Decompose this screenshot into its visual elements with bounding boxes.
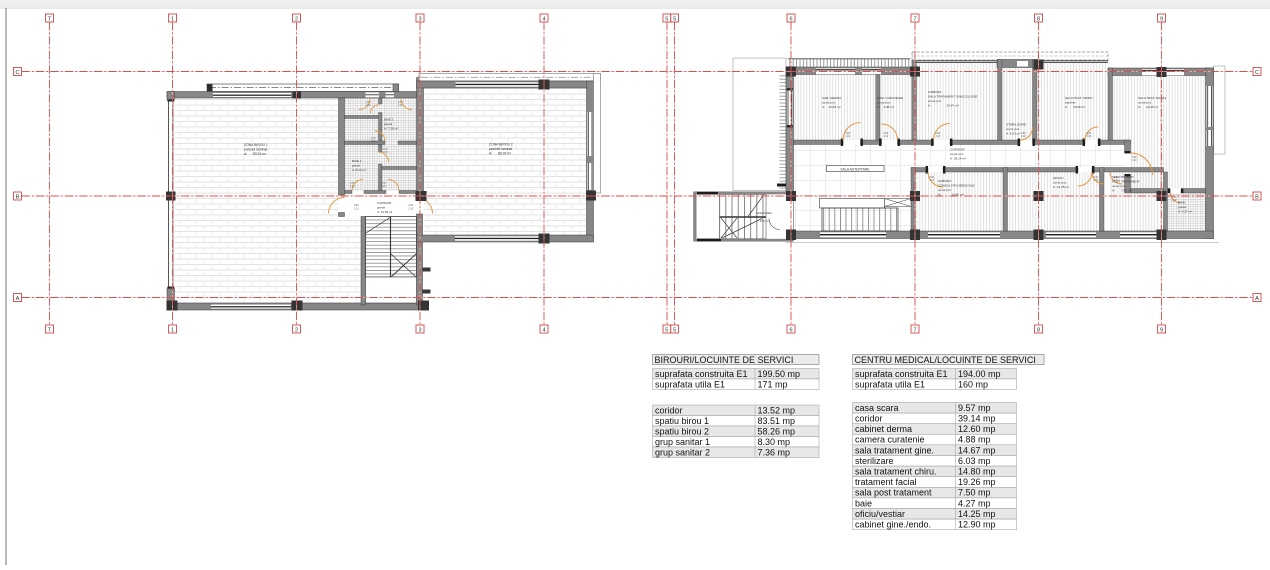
- svg-text:2.10: 2.10: [1021, 136, 1026, 138]
- svg-text:CAM. CURATENIE: CAM. CURATENIE: [877, 96, 903, 100]
- svg-text:7: 7: [913, 16, 916, 22]
- svg-text:83.51 mp: 83.51 mp: [758, 416, 796, 426]
- svg-text:A: 14.25 m²: A: 14.25 m²: [1053, 185, 1069, 189]
- svg-text:oficiu/vestiar: oficiu/vestiar: [855, 509, 905, 519]
- svg-text:covor pvc: covor pvc: [1138, 101, 1152, 105]
- svg-text:2.10: 2.10: [366, 105, 371, 107]
- svg-text:0.75: 0.75: [381, 183, 386, 185]
- svg-text:gresie: gresie: [384, 122, 393, 126]
- svg-text:2.10: 2.10: [398, 105, 403, 107]
- svg-text:2: 2: [295, 327, 298, 333]
- svg-text:39.14 mp: 39.14 mp: [958, 414, 996, 424]
- svg-text:7: 7: [913, 327, 916, 333]
- svg-text:BAIE 1: BAIE 1: [352, 159, 362, 163]
- svg-text:2: 2: [295, 16, 298, 22]
- svg-text:1: 1: [171, 16, 174, 22]
- svg-text:A: 7.36 m²: A: 7.36 m²: [384, 127, 398, 131]
- svg-text:0.90: 0.90: [409, 205, 414, 207]
- svg-text:BIROURI/LOCUINTE DE SERVICI: BIROURI/LOCUINTE DE SERVICI: [655, 355, 794, 365]
- svg-text:7.50 mp: 7.50 mp: [958, 488, 991, 498]
- svg-text:7.36 mp: 7.36 mp: [758, 447, 791, 457]
- svg-text:199.50 mp: 199.50 mp: [758, 369, 801, 379]
- svg-text:ZONA BIROU 1: ZONA BIROU 1: [244, 143, 268, 147]
- svg-text:gresie: gresie: [1178, 205, 1187, 209]
- svg-text:A: 6.03 m²: A: 6.03 m²: [1006, 132, 1020, 136]
- svg-text:T: T: [48, 16, 52, 22]
- svg-text:T: T: [48, 327, 52, 333]
- svg-text:0.90: 0.90: [1114, 177, 1119, 179]
- svg-text:3: 3: [418, 16, 421, 22]
- svg-text:5: 5: [665, 16, 668, 22]
- svg-text:spatiu birou 1: spatiu birou 1: [655, 416, 709, 426]
- svg-text:covor pvc: covor pvc: [877, 101, 891, 105]
- svg-text:12.60 mp: 12.60 mp: [958, 424, 996, 434]
- svg-text:0.75: 0.75: [366, 102, 371, 104]
- svg-text:0.75: 0.75: [371, 138, 376, 140]
- svg-text:covor pvc: covor pvc: [822, 101, 836, 105]
- svg-text:6: 6: [789, 16, 792, 22]
- svg-text:2.10: 2.10: [350, 186, 355, 188]
- svg-text:CAB. DERMA: CAB. DERMA: [822, 96, 842, 100]
- svg-text:parchet: parchet: [1065, 101, 1075, 105]
- svg-text:covor pvc: covor pvc: [1006, 127, 1020, 131]
- svg-text:2.10: 2.10: [1132, 160, 1137, 162]
- svg-text:cabinet derma: cabinet derma: [855, 424, 912, 434]
- svg-text:8: 8: [1037, 16, 1040, 22]
- svg-text:0.80: 0.80: [1021, 133, 1026, 135]
- svg-text:camera curatenie: camera curatenie: [855, 435, 925, 445]
- svg-text:CORIDOR: CORIDOR: [377, 201, 392, 205]
- svg-text:2.10: 2.10: [936, 136, 941, 138]
- svg-text:2.10: 2.10: [354, 209, 359, 211]
- svg-text:0.75: 0.75: [398, 102, 403, 104]
- svg-text:6.03 mp: 6.03 mp: [958, 456, 991, 466]
- svg-text:B: B: [1255, 194, 1259, 200]
- svg-text:4.88 mp: 4.88 mp: [958, 435, 991, 445]
- svg-text:A: 12.60 m²: A: 12.60 m²: [822, 105, 841, 109]
- svg-text:0.90: 0.90: [354, 205, 359, 207]
- svg-text:160 mp: 160 mp: [958, 379, 988, 389]
- svg-text:B: B: [16, 194, 20, 200]
- svg-text:casa scara: casa scara: [855, 403, 899, 413]
- svg-text:2.10: 2.10: [1094, 180, 1099, 182]
- svg-text:parchet laminat: parchet laminat: [489, 147, 512, 151]
- svg-text:2.10: 2.10: [409, 209, 414, 211]
- svg-text:0.90: 0.90: [846, 133, 851, 135]
- svg-text:0.90: 0.90: [1094, 177, 1099, 179]
- svg-text:sterilizare: sterilizare: [855, 456, 894, 466]
- svg-text:9.57 mp: 9.57 mp: [958, 403, 991, 413]
- svg-text:covor pvc: covor pvc: [938, 188, 952, 192]
- svg-text:grup sanitar 1: grup sanitar 1: [655, 437, 710, 447]
- svg-text:2.10: 2.10: [1114, 180, 1119, 182]
- svg-text:covor pvc: covor pvc: [928, 99, 942, 103]
- svg-text:13.52 mp: 13.52 mp: [758, 405, 796, 415]
- svg-text:8: 8: [1037, 327, 1040, 333]
- svg-text:CORIDOR: CORIDOR: [950, 148, 965, 152]
- svg-text:covor pvc: covor pvc: [950, 152, 964, 156]
- svg-text:SALA TRAT. FACIAL: SALA TRAT. FACIAL: [1138, 96, 1167, 100]
- svg-text:14.25 mp: 14.25 mp: [958, 509, 996, 519]
- svg-text:covor pvc: covor pvc: [1053, 181, 1067, 185]
- svg-text:sala tratament chiru.: sala tratament chiru.: [855, 467, 937, 477]
- svg-text:14.67 mp: 14.67 mp: [958, 445, 996, 455]
- svg-text:A: 4.88 m²: A: 4.88 m²: [877, 105, 894, 109]
- svg-text:SALA TRAT. CHIRU: SALA TRAT. CHIRU: [1065, 96, 1093, 100]
- svg-text:3: 3: [418, 327, 421, 333]
- svg-text:A: 39.14 m²: A: 39.14 m²: [950, 157, 966, 161]
- svg-text:A: A: [16, 296, 20, 302]
- svg-text:tratament facial: tratament facial: [855, 477, 917, 487]
- svg-text:1: 1: [171, 327, 174, 333]
- svg-text:9: 9: [1160, 327, 1163, 333]
- svg-text:2.10: 2.10: [1087, 136, 1092, 138]
- svg-text:coridor: coridor: [655, 405, 683, 415]
- svg-text:2.10: 2.10: [930, 180, 935, 182]
- svg-text:CASA SCARA: CASA SCARA: [756, 212, 772, 215]
- svg-text:4.27 mp: 4.27 mp: [958, 498, 991, 508]
- svg-text:14.80 mp: 14.80 mp: [958, 467, 996, 477]
- svg-text:5: 5: [665, 327, 668, 333]
- svg-text:covor pvc: covor pvc: [1112, 184, 1126, 188]
- svg-text:gresie: gresie: [352, 164, 361, 168]
- svg-text:9: 9: [1160, 16, 1163, 22]
- svg-text:SALA ASTEPTARE: SALA ASTEPTARE: [840, 167, 870, 171]
- svg-text:58.26 mp: 58.26 mp: [758, 426, 796, 436]
- svg-text:0.90: 0.90: [936, 133, 941, 135]
- svg-text:19.26 mp: 19.26 mp: [958, 477, 996, 487]
- svg-text:OFICIU: OFICIU: [1053, 176, 1063, 180]
- svg-text:CONSULTATII MEDICALE: CONSULTATII MEDICALE: [938, 184, 974, 188]
- svg-text:194.00 mp: 194.00 mp: [958, 369, 1001, 379]
- svg-text:C: C: [1255, 70, 1259, 76]
- svg-text:8.30 mp: 8.30 mp: [758, 437, 791, 447]
- svg-text:BAIE 2: BAIE 2: [384, 118, 394, 122]
- svg-text:CABINET: CABINET: [938, 179, 952, 183]
- svg-text:5: 5: [673, 16, 676, 22]
- svg-text:A: 13.52 ml: A: 13.52 ml: [377, 210, 393, 214]
- svg-text:A: 88.26 m²: A: 88.26 m²: [489, 152, 512, 156]
- svg-text:C: C: [15, 70, 19, 76]
- svg-text:2.10: 2.10: [884, 136, 889, 138]
- svg-text:CABINET: CABINET: [928, 90, 942, 94]
- svg-text:0.90: 0.90: [1132, 157, 1137, 159]
- svg-text:0.70: 0.70: [383, 149, 388, 151]
- svg-text:suprafata construita E1: suprafata construita E1: [655, 369, 748, 379]
- svg-text:spatiu birou 2: spatiu birou 2: [655, 426, 709, 436]
- svg-text:A: 14.67 m²: A: 14.67 m²: [928, 104, 959, 108]
- svg-text:A: 8.30 m²: A: 8.30 m²: [352, 168, 366, 172]
- svg-text:4: 4: [542, 16, 545, 22]
- svg-text:CENTRU MEDICAL/LOCUINTE DE SER: CENTRU MEDICAL/LOCUINTE DE SERVICI: [855, 355, 1036, 365]
- svg-text:0.90: 0.90: [884, 133, 889, 135]
- svg-text:suprafata construita E1: suprafata construita E1: [855, 369, 948, 379]
- svg-text:A: 83.51 m²: A: 83.51 m²: [244, 152, 267, 156]
- svg-text:gresie: gresie: [377, 206, 386, 210]
- svg-text:2.10: 2.10: [383, 152, 388, 154]
- svg-text:coridor: coridor: [855, 414, 883, 424]
- svg-text:parchet laminat: parchet laminat: [244, 148, 267, 152]
- svg-text:A: 19.26 m²: A: 19.26 m²: [1138, 105, 1158, 109]
- svg-text:171 mp: 171 mp: [758, 379, 788, 389]
- svg-text:0.70: 0.70: [1172, 197, 1177, 199]
- svg-text:grup sanitar 2: grup sanitar 2: [655, 447, 710, 457]
- svg-text:0.90: 0.90: [1087, 133, 1092, 135]
- svg-text:12.90 mp: 12.90 mp: [958, 520, 996, 530]
- svg-text:0.75: 0.75: [350, 183, 355, 185]
- svg-text:2.10: 2.10: [1172, 200, 1177, 202]
- svg-text:6: 6: [789, 327, 792, 333]
- svg-text:0.90: 0.90: [930, 177, 935, 179]
- svg-text:A: 4.27 m²: A: 4.27 m²: [1178, 210, 1192, 214]
- svg-text:2.10: 2.10: [381, 186, 386, 188]
- svg-text:4: 4: [542, 327, 545, 333]
- svg-text:A: 14.80 m²: A: 14.80 m²: [1065, 105, 1085, 109]
- svg-text:cabinet gine./endo.: cabinet gine./endo.: [855, 520, 931, 530]
- svg-text:A: A: [1255, 296, 1259, 302]
- svg-text:STERILIZARE: STERILIZARE: [1006, 123, 1026, 127]
- svg-text:sala tratament gine.: sala tratament gine.: [855, 445, 934, 455]
- svg-text:A: 7.50 m²: A: 7.50 m²: [1112, 189, 1131, 193]
- svg-text:sala post tratament: sala post tratament: [855, 488, 932, 498]
- svg-text:suprafata utila E1: suprafata utila E1: [855, 379, 925, 389]
- svg-text:SALA TRATAMENT GINECOLOGIE: SALA TRATAMENT GINECOLOGIE: [928, 95, 977, 99]
- svg-text:9.57 m²: 9.57 m²: [760, 220, 769, 223]
- svg-text:5: 5: [673, 327, 676, 333]
- svg-text:baie: baie: [855, 498, 872, 508]
- svg-text:2.10: 2.10: [846, 136, 851, 138]
- svg-text:BAIE: BAIE: [1178, 201, 1185, 205]
- svg-text:suprafata utila E1: suprafata utila E1: [655, 379, 725, 389]
- svg-text:ZONA BIROU 2: ZONA BIROU 2: [489, 143, 513, 147]
- svg-text:2.10: 2.10: [371, 141, 376, 143]
